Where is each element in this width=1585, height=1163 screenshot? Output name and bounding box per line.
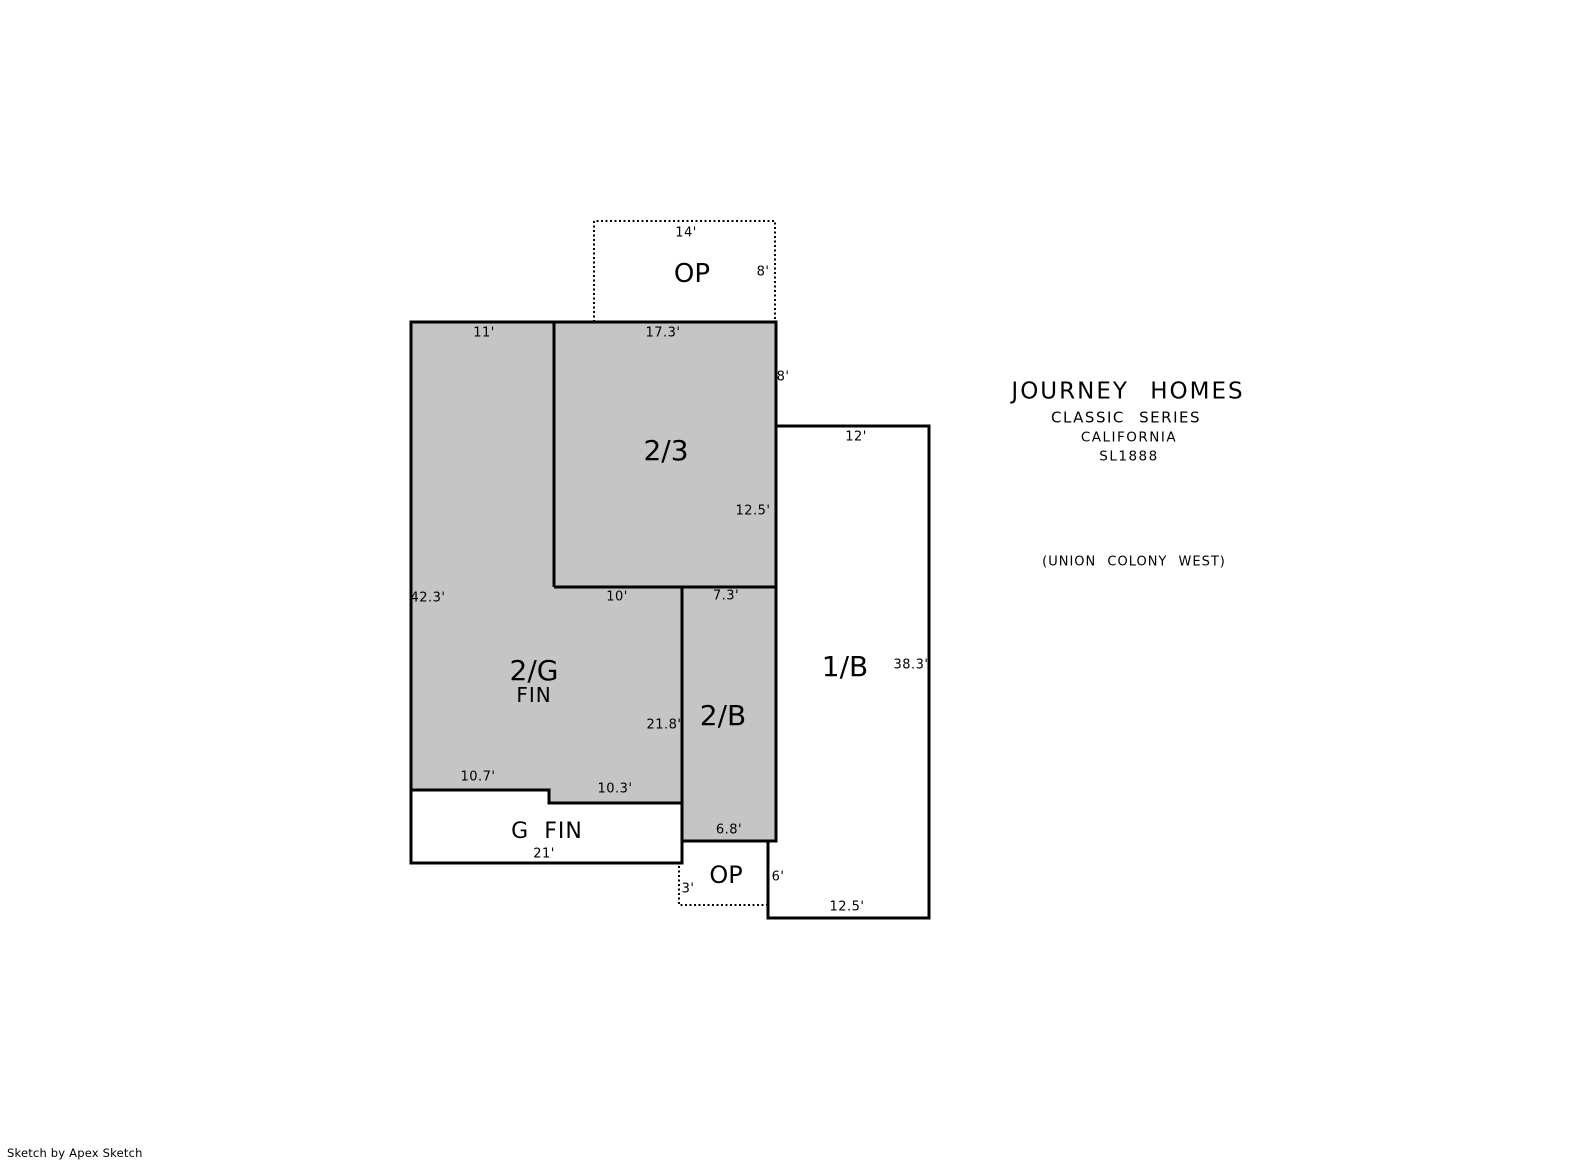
floorplan-sketch-page: OP 2/3 2/G FIN 2/B 1/B G FIN OP 14' 8' 1… [0,0,1585,1163]
dim-gfin-step-left: 10.7' [460,771,495,784]
dim-room-23-width: 17.3' [645,327,680,340]
dim-room-2b-bottom: 6.8' [716,824,742,837]
room-1b-label: 1/B [822,653,868,681]
title-model-line: CALIFORNIA [1081,431,1177,445]
dim-room-1b-top: 12' [845,431,867,444]
dim-room-1b-right: 38.3' [893,659,928,672]
apex-sketch-watermark: Sketch by Apex Sketch [7,1146,143,1160]
dim-room-2b-top: 7.3' [713,590,739,603]
dim-op-bottom-left: 3' [682,883,695,896]
dim-op-top-height: 8' [757,266,770,279]
dim-left-height: 42.3' [410,592,445,605]
dim-gfin-step-right: 10.3' [597,783,632,796]
dim-top-left-width: 11' [473,327,495,340]
room-2g-fin-label: FIN [516,685,551,705]
dim-room-1b-bottom: 12.5' [829,901,864,914]
room-23-label: 2/3 [643,437,688,465]
title-series: CLASSIC SERIES [1051,411,1201,426]
room-2b-label: 2/B [700,702,746,730]
dim-room-1b-lower-left: 6' [772,871,785,884]
dim-op-top-width: 14' [675,227,697,240]
dim-room-2g-top: 10' [606,591,628,604]
op-bottom-label: OP [709,863,742,887]
dim-room-23-lower-right: 12.5' [735,505,770,518]
op-top-label: OP [674,261,710,287]
main-structure-outline [411,322,776,841]
floorplan-svg [0,0,1585,1163]
room-2g-label: 2/G [510,657,559,685]
dim-gfin-bottom: 21' [533,848,555,861]
dim-room-23-upper-right: 8' [777,371,790,384]
gfin-label: G FIN [511,821,583,843]
title-subdivision: (UNION COLONY WEST) [1042,556,1226,569]
dim-room-2g-right: 21.8' [646,719,681,732]
title-model-number: SL1888 [1099,450,1158,464]
title-company: JOURNEY HOMES [1011,381,1244,404]
